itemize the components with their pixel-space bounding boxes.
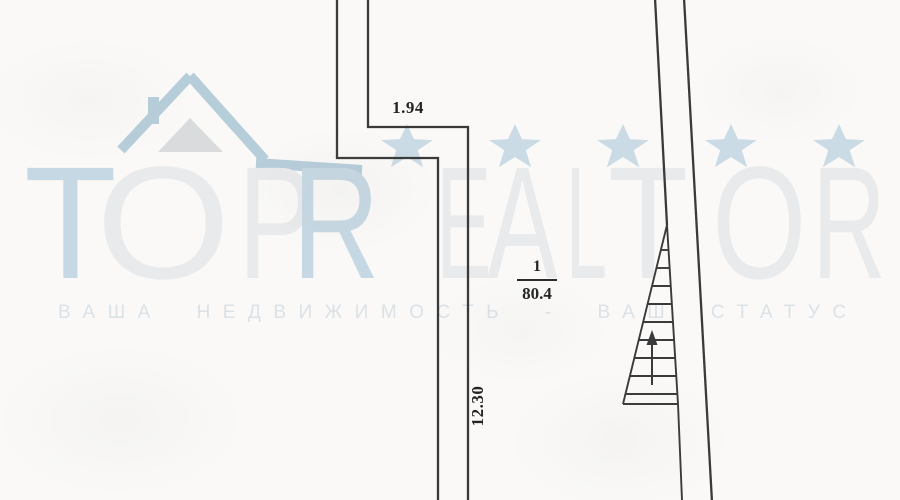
wall-slanted-left xyxy=(655,0,667,225)
dimension-label-height: 12.30 xyxy=(468,381,488,431)
wall-inner-left xyxy=(368,0,468,500)
stair-right-edge xyxy=(667,225,682,500)
room-area: 80.4 xyxy=(510,284,564,304)
wall-outer-left xyxy=(337,0,438,500)
dimension-label-width: 1.94 xyxy=(378,98,438,118)
fraction-bar xyxy=(517,279,557,281)
arrow-up-icon xyxy=(647,330,658,345)
room-label: 1 80.4 xyxy=(510,257,564,305)
floor-plan-drawing xyxy=(0,0,900,500)
room-number: 1 xyxy=(510,257,564,276)
stair-left-edge xyxy=(623,225,667,404)
floor-plan-screenshot: T O P R E A L T O R ВАША НЕДВИЖИМОСТЬ - … xyxy=(0,0,900,500)
wall-slanted-right xyxy=(684,0,712,500)
